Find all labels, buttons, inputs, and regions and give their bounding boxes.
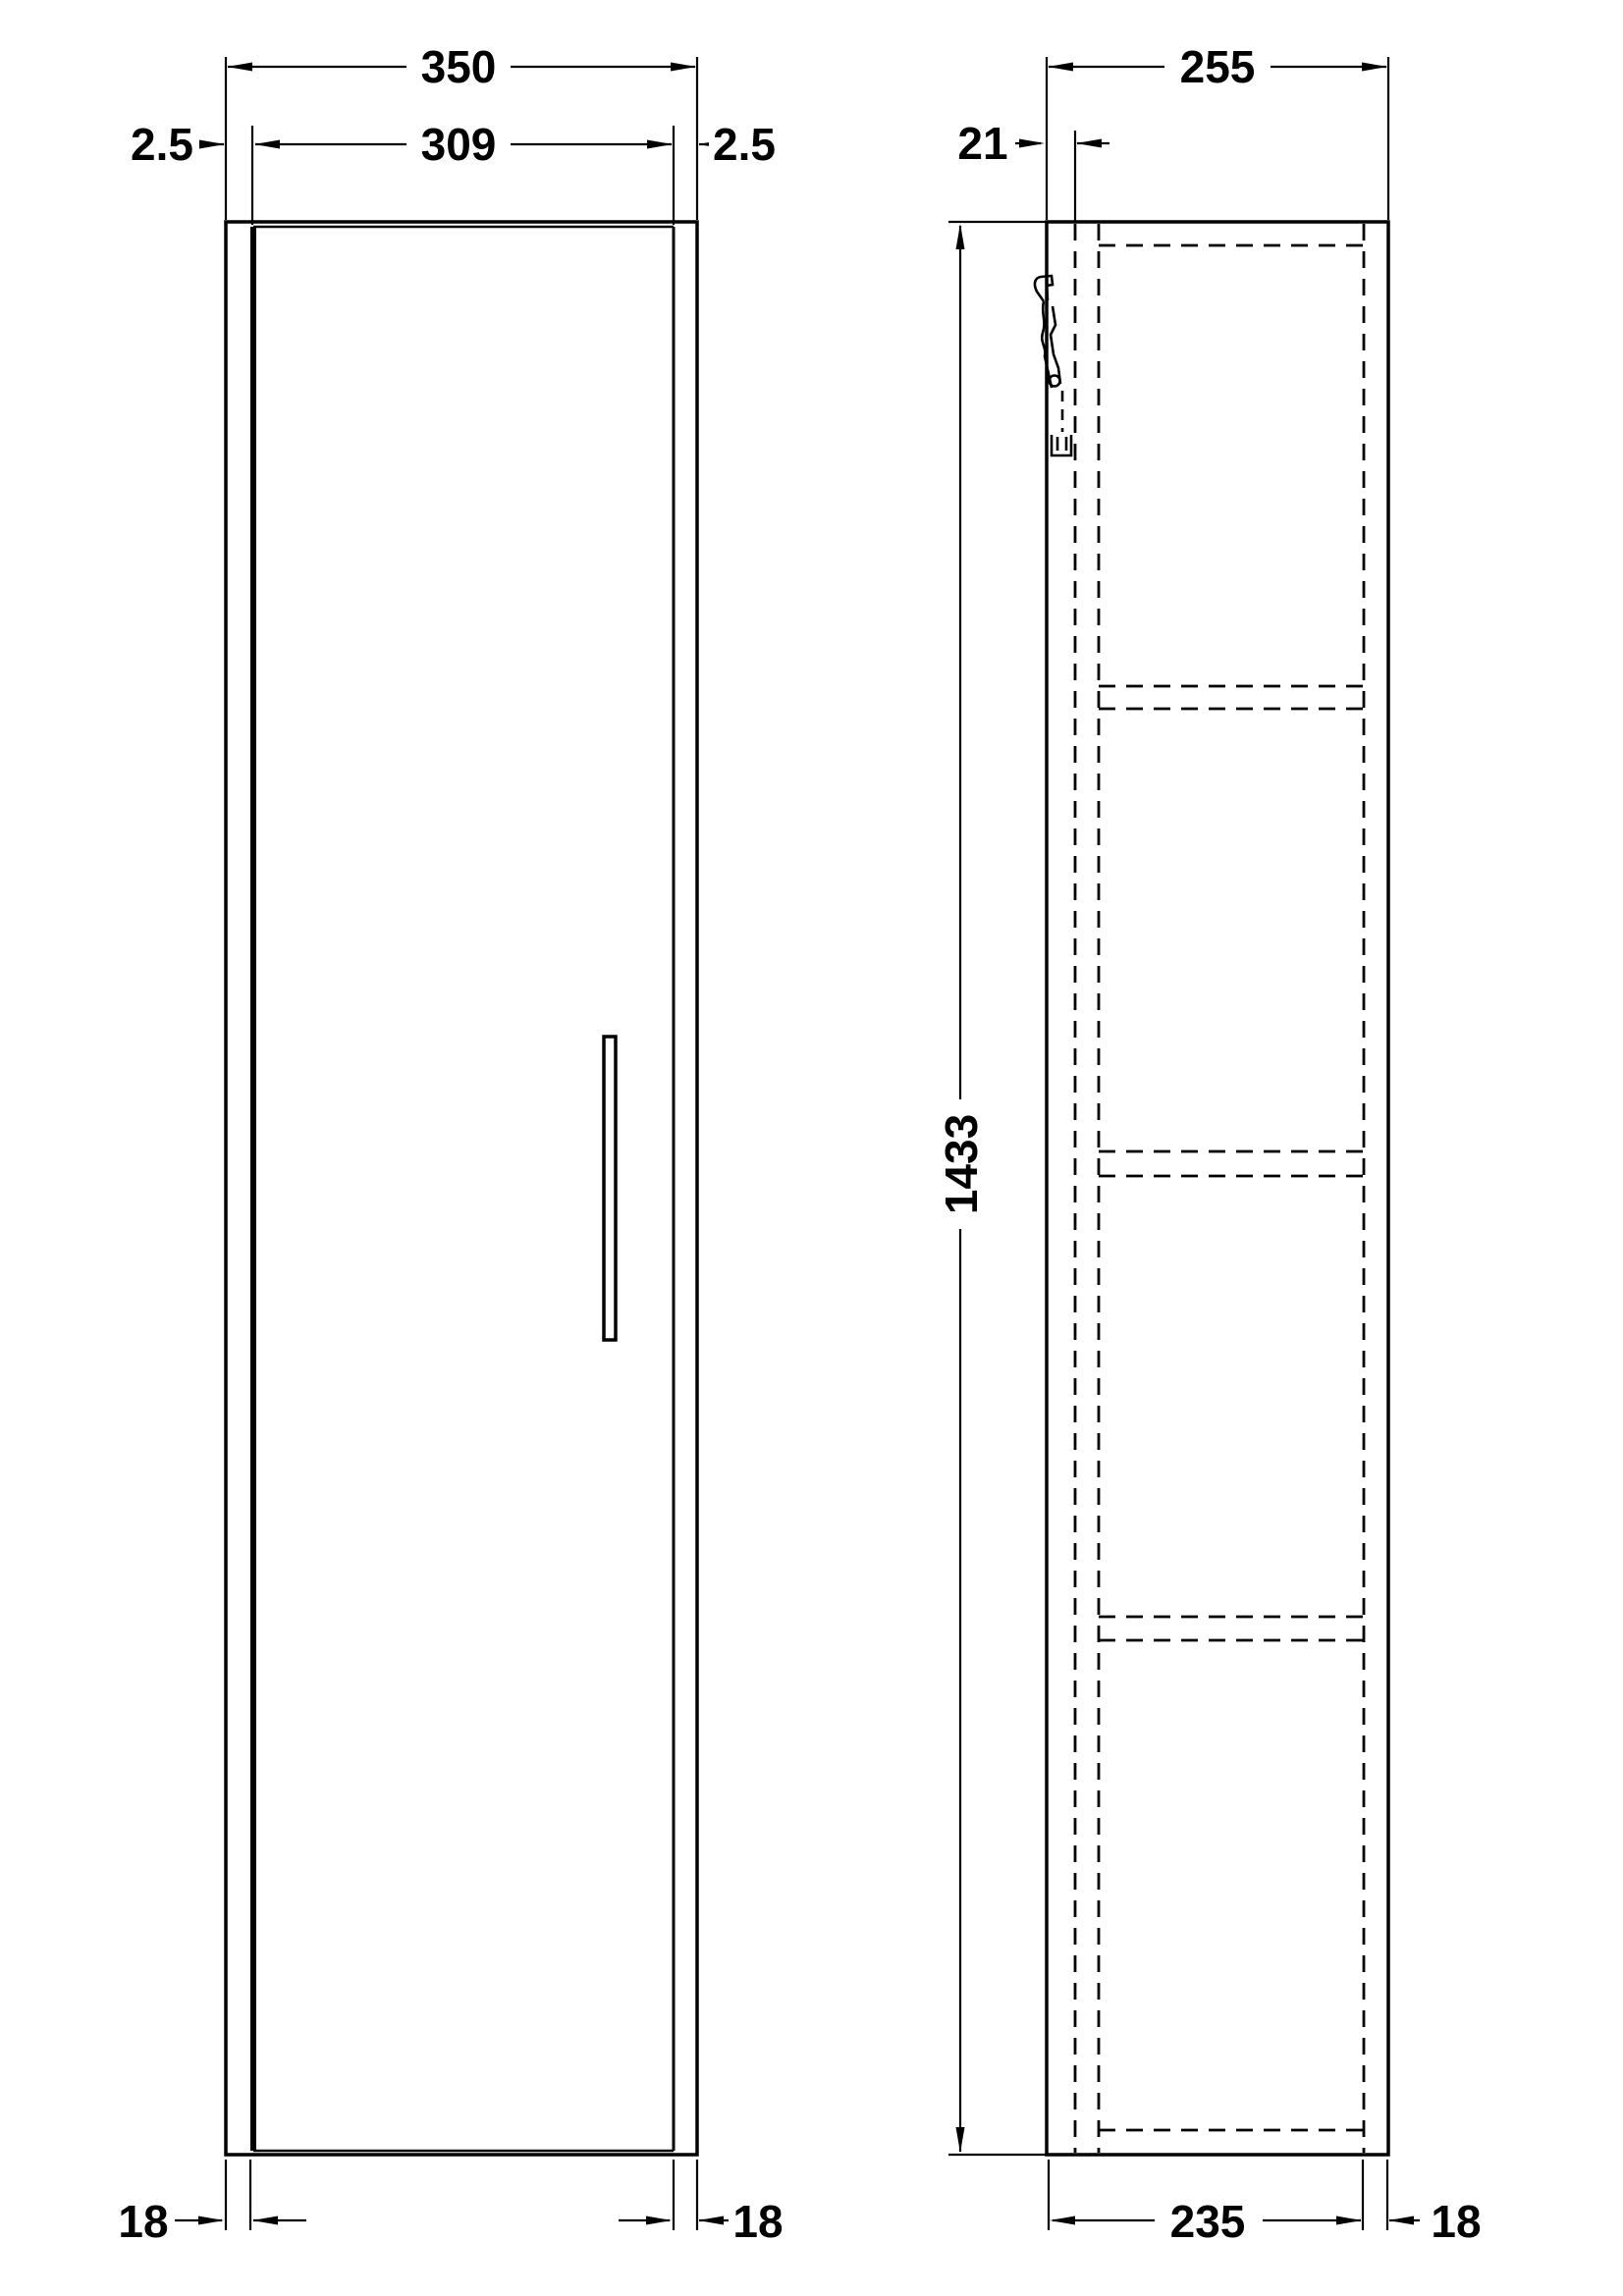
hinge-hook [1035,276,1053,301]
technical-drawing-page: 350 309 2.5 2.5 18 18 255 21 1433 235 18 [0,0,1623,2296]
side-hidden-verticals [1075,224,1364,2153]
dim-side-overall-height: 1433 [939,1110,984,1218]
dim-front-door-width: 309 [417,122,501,167]
arrow-18S-right [1388,2216,1414,2225]
arrow-350-right [671,63,696,72]
arrow-21-left [1019,139,1045,148]
arrow-18R-right [698,2216,724,2225]
arrow-18R-left [646,2216,672,2225]
hinge-icon [1035,276,1071,455]
dim-side-carcass-depth: 235 [1166,2199,1250,2244]
arrow-309-right [647,140,673,149]
dim-front-overall-width: 350 [417,44,501,89]
front-view [226,222,697,2155]
dim-front-panel-right: 18 [729,2199,786,2244]
side-dimensions [948,57,1420,2230]
arrow-235-right [1336,2216,1362,2225]
arrow-255-left [1048,63,1073,72]
dim-side-back-panel: 18 [1427,2199,1485,2244]
door-handle [604,1037,616,1340]
cabinet-drawing-svg [0,0,1623,2296]
front-dimensions [175,57,729,2230]
hinge-body-right [1051,306,1060,384]
arrow-1433-bottom [956,2127,965,2153]
dim-side-overall-depth: 255 [1176,44,1260,89]
side-view [1035,222,1388,2155]
side-hidden-horizontals [1099,245,1364,2130]
front-carcass-outline [226,222,697,2155]
hinge-mount-plate [1052,435,1071,455]
arrow-255-right [1362,63,1387,72]
arrow-235-left [1050,2216,1075,2225]
arrow-18L-left [198,2216,224,2225]
arrow-309-left [254,140,280,149]
dim-front-door-gap-right: 2.5 [709,122,780,167]
arrow-1433-top [956,224,965,249]
dim-front-panel-left: 18 [114,2199,172,2244]
arrow-350-left [227,63,252,72]
arrow-21-right [1076,139,1102,148]
arrow-gap-left [199,140,225,149]
dim-side-door-thickness: 21 [953,121,1011,166]
dim-front-door-gap-left: 2.5 [127,122,197,167]
arrow-18L-right [252,2216,278,2225]
